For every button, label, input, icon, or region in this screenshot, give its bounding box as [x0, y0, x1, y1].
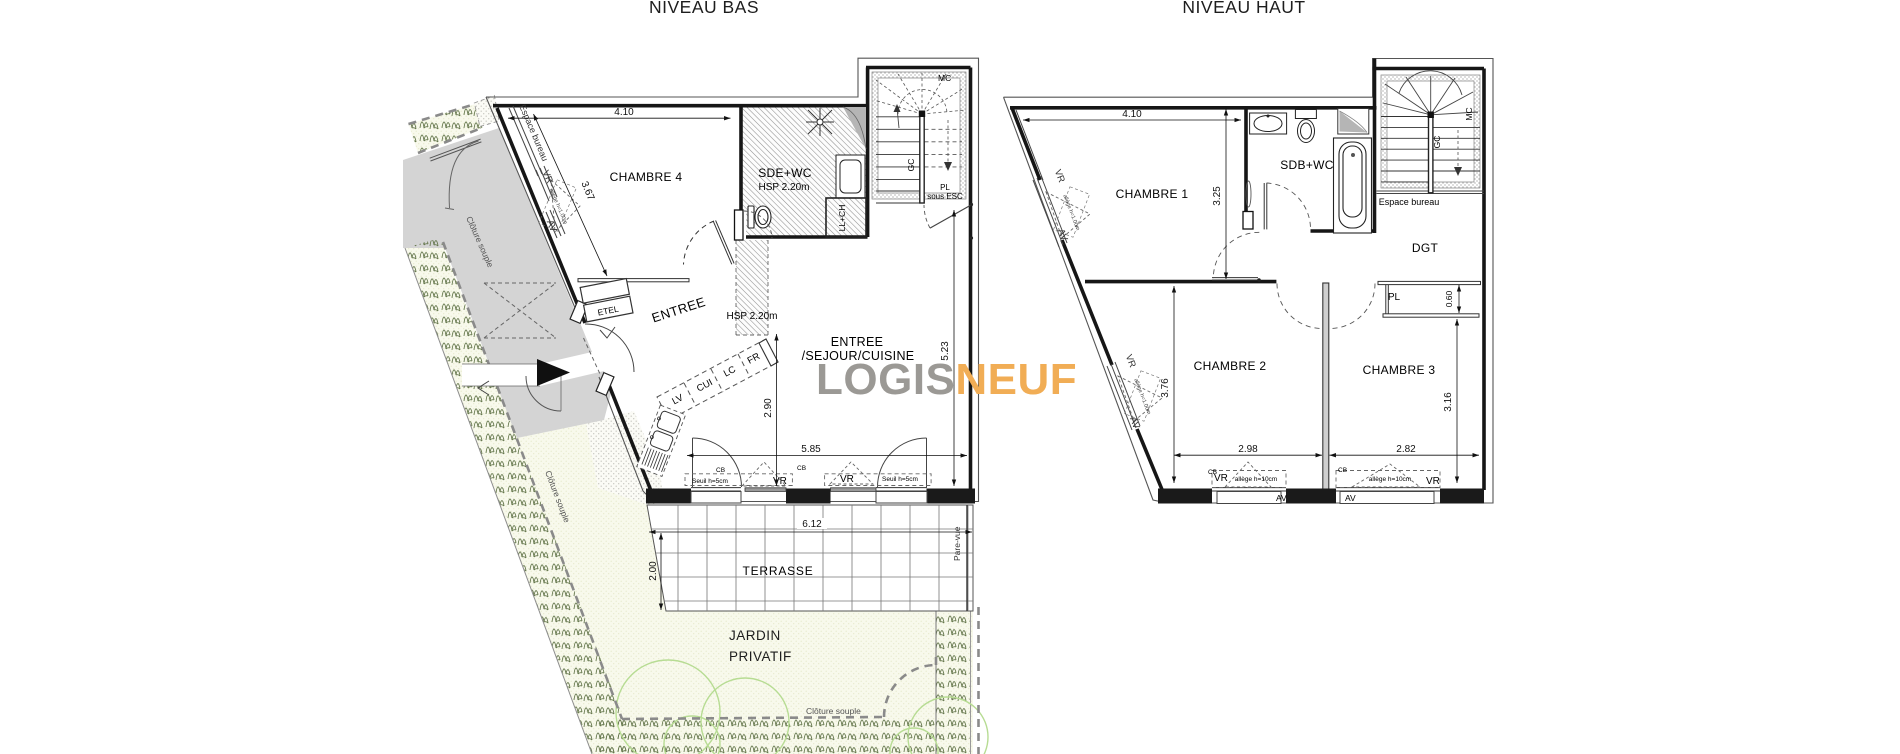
svg-text:HSP 2.20m: HSP 2.20m: [727, 311, 778, 322]
svg-text:PRIVATIF: PRIVATIF: [729, 649, 792, 664]
svg-text:AV: AV: [1345, 493, 1356, 503]
svg-text:3.76: 3.76: [1160, 378, 1171, 398]
svg-text:DGT: DGT: [1412, 241, 1439, 255]
svg-text:5.85: 5.85: [801, 444, 821, 455]
svg-text:Espace bureau: Espace bureau: [1379, 197, 1440, 207]
svg-text:6.12: 6.12: [802, 519, 822, 530]
svg-text:SDB+WC: SDB+WC: [1280, 158, 1334, 172]
svg-text:VR: VR: [773, 476, 787, 487]
svg-text:GC: GC: [906, 159, 916, 172]
svg-text:2.90: 2.90: [763, 398, 774, 418]
svg-text:CHAMBRE 2: CHAMBRE 2: [1194, 359, 1267, 373]
svg-text:Pare-vue: Pare-vue: [952, 526, 962, 561]
svg-text:AV: AV: [1276, 493, 1287, 503]
svg-text:2.82: 2.82: [1396, 444, 1416, 455]
svg-text:2.98: 2.98: [1238, 444, 1258, 455]
svg-text:PL: PL: [940, 183, 950, 192]
svg-text:VR: VR: [1426, 476, 1440, 487]
svg-text:CB: CB: [1338, 467, 1347, 474]
svg-text:SDE+WC: SDE+WC: [758, 166, 812, 180]
svg-text:Clôture souple: Clôture souple: [806, 706, 861, 716]
svg-text:2.00: 2.00: [648, 561, 659, 581]
svg-text:allège h=10cm: allège h=10cm: [1369, 476, 1411, 483]
svg-text:LL+CH: LL+CH: [837, 205, 847, 232]
svg-text:CHAMBRE 1: CHAMBRE 1: [1116, 187, 1189, 201]
svg-text:CB: CB: [797, 465, 806, 472]
svg-text:NIVEAU BAS: NIVEAU BAS: [649, 0, 759, 17]
svg-text:CB: CB: [1208, 469, 1217, 476]
svg-text:3.16: 3.16: [1443, 392, 1454, 412]
svg-text:CHAMBRE 3: CHAMBRE 3: [1363, 363, 1436, 377]
svg-text:4.10: 4.10: [1122, 109, 1142, 120]
svg-text:PL: PL: [1388, 292, 1401, 303]
svg-text:MC: MC: [1464, 107, 1474, 120]
svg-text:0.60: 0.60: [1444, 290, 1454, 307]
svg-text:ENTREE: ENTREE: [831, 335, 884, 349]
svg-text:CB: CB: [716, 467, 725, 474]
svg-text:LOGISNEUF: LOGISNEUF: [816, 355, 1077, 404]
svg-text:sous ESC: sous ESC: [927, 192, 963, 201]
svg-text:JARDIN: JARDIN: [729, 628, 781, 643]
svg-text:allège h=10cm: allège h=10cm: [1235, 476, 1277, 483]
svg-text:HSP 2.20m: HSP 2.20m: [759, 182, 810, 193]
svg-text:MC: MC: [938, 73, 951, 83]
svg-text:VR: VR: [840, 474, 854, 485]
svg-text:TERRASSE: TERRASSE: [742, 564, 813, 578]
svg-text:GC: GC: [1432, 136, 1442, 149]
svg-text:CHAMBRE 4: CHAMBRE 4: [610, 170, 683, 184]
svg-text:Seuil h=5cm: Seuil h=5cm: [692, 478, 728, 485]
svg-text:Seuil h=5cm: Seuil h=5cm: [882, 476, 918, 483]
svg-text:4.10: 4.10: [614, 107, 634, 118]
svg-text:NIVEAU HAUT: NIVEAU HAUT: [1182, 0, 1305, 17]
svg-text:3.25: 3.25: [1212, 186, 1223, 206]
